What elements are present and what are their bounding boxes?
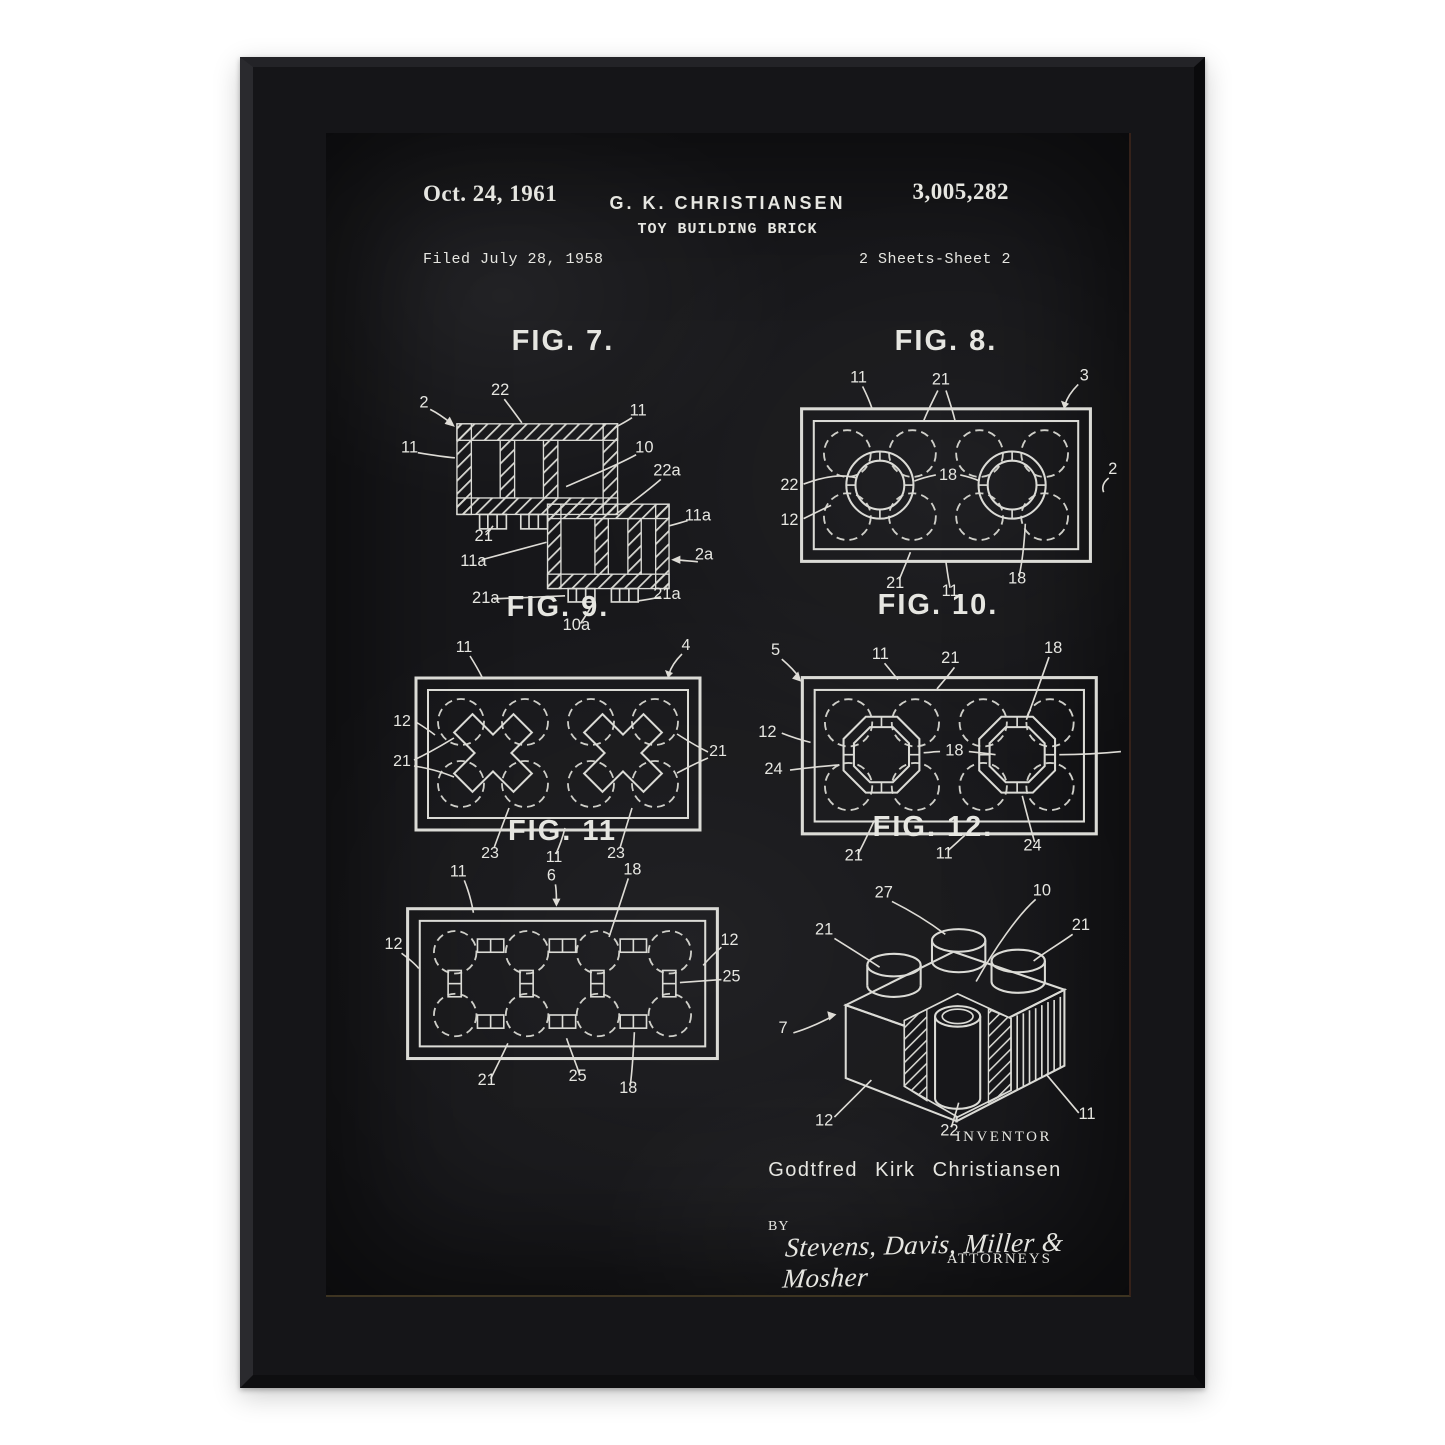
figure-9-title: FIG. 9. [388, 591, 728, 624]
figure-ref-label: 25 [569, 1067, 587, 1085]
figure-ref-label: 11 [1078, 1105, 1095, 1123]
figure-11-drawing: 11618121225212518 [385, 850, 740, 1097]
figure-ref-label: 11 [401, 439, 418, 457]
figure-ref-label: 25 [723, 968, 740, 986]
patent-poster: Oct. 24, 1961 G. K. CHRISTIANSEN TOY BUI… [326, 133, 1131, 1297]
figure-ref-label: 21 [709, 743, 727, 760]
figure-ref-label: 18 [939, 466, 957, 484]
figure-ref-label: 11a [685, 507, 712, 525]
figure-11-title: FIG. 11 [385, 815, 740, 848]
figure-ref-label: 18 [623, 860, 641, 878]
figure-ref-label: 18 [619, 1079, 637, 1097]
figure-ref-label: 10 [635, 439, 653, 457]
figure-ref-label: 11 [456, 639, 473, 656]
figure-ref-label: 21 [393, 753, 411, 770]
sheet-number: 2 Sheets-Sheet 2 [859, 251, 1011, 268]
figure-ref-label: 21 [475, 527, 493, 545]
figure-ref-label: 11a [460, 552, 487, 570]
figure-ref-label: 12 [721, 931, 739, 949]
figure-7-title: FIG. 7. [393, 325, 733, 358]
figure-8: FIG. 8. [773, 325, 1119, 599]
figure-ref-label: 24 [764, 760, 782, 778]
figure-12: FIG. 12. [748, 811, 1118, 1154]
figure-ref-label: 18 [945, 742, 963, 760]
patent-title: TOY BUILDING BRICK [326, 221, 1129, 238]
figure-ref-label: 12 [385, 935, 402, 953]
figure-ref-label: 21 [941, 649, 959, 667]
figure-ref-label: 18 [1008, 570, 1026, 588]
figure-12-title: FIG. 12. [748, 811, 1118, 844]
figure-ref-label: 22 [780, 476, 798, 494]
inventor-name: Godtfred Kirk Christiansen [730, 1159, 1100, 1182]
figure-ref-label: 12 [758, 723, 776, 741]
figure-ref-label: 21 [1072, 916, 1090, 934]
figure-ref-label: 22a [653, 461, 681, 479]
filed-date: Filed July 28, 1958 [423, 251, 604, 268]
figure-ref-label: 22 [491, 381, 509, 399]
figure-ref-label: 21 [478, 1071, 496, 1089]
figure-ref-label: 11 [450, 862, 467, 880]
figure-ref-label: 21 [932, 370, 950, 388]
figure-ref-label: 11 [630, 402, 647, 420]
figure-ref-label: 27 [875, 883, 893, 901]
figure-ref-label: 2a [695, 546, 714, 564]
figure-ref-label: 18 [1044, 639, 1062, 657]
figure-ref-label: 7 [779, 1019, 788, 1037]
figure-ref-label: 5 [771, 641, 780, 659]
figure-10-title: FIG. 10. [753, 589, 1123, 622]
figure-ref-label: 21 [815, 920, 833, 938]
inventor-caption: INVENTOR [956, 1129, 1052, 1146]
figure-ref-label: 4 [682, 637, 691, 654]
figure-ref-label: 11 [850, 368, 867, 386]
figure-11: FIG. 11 [385, 815, 740, 1097]
patent-number: 3,005,282 [913, 179, 1010, 205]
figure-ref-label: 10 [1033, 881, 1051, 899]
figure-ref-label: 3 [1080, 366, 1089, 384]
figure-ref-label: 12 [815, 1111, 833, 1129]
figure-ref-label: 12 [393, 713, 411, 730]
figure-8-title: FIG. 8. [773, 325, 1119, 358]
attorneys-label: ATTORNEYS [947, 1251, 1052, 1268]
figure-ref-label: 11 [872, 645, 889, 663]
figure-8-drawing: 112132218122211118 [773, 360, 1119, 599]
figure-ref-label: 6 [547, 866, 556, 884]
product-photo: { "poster": { "colors": { "background": … [0, 0, 1445, 1445]
figure-ref-label: 2 [1108, 460, 1117, 478]
figure-12-drawing: 271021217122211 [748, 846, 1118, 1154]
figure-ref-label: 2 [419, 393, 428, 411]
figure-ref-label: 12 [780, 511, 798, 529]
picture-frame: Oct. 24, 1961 G. K. CHRISTIANSEN TOY BUI… [240, 57, 1205, 1388]
